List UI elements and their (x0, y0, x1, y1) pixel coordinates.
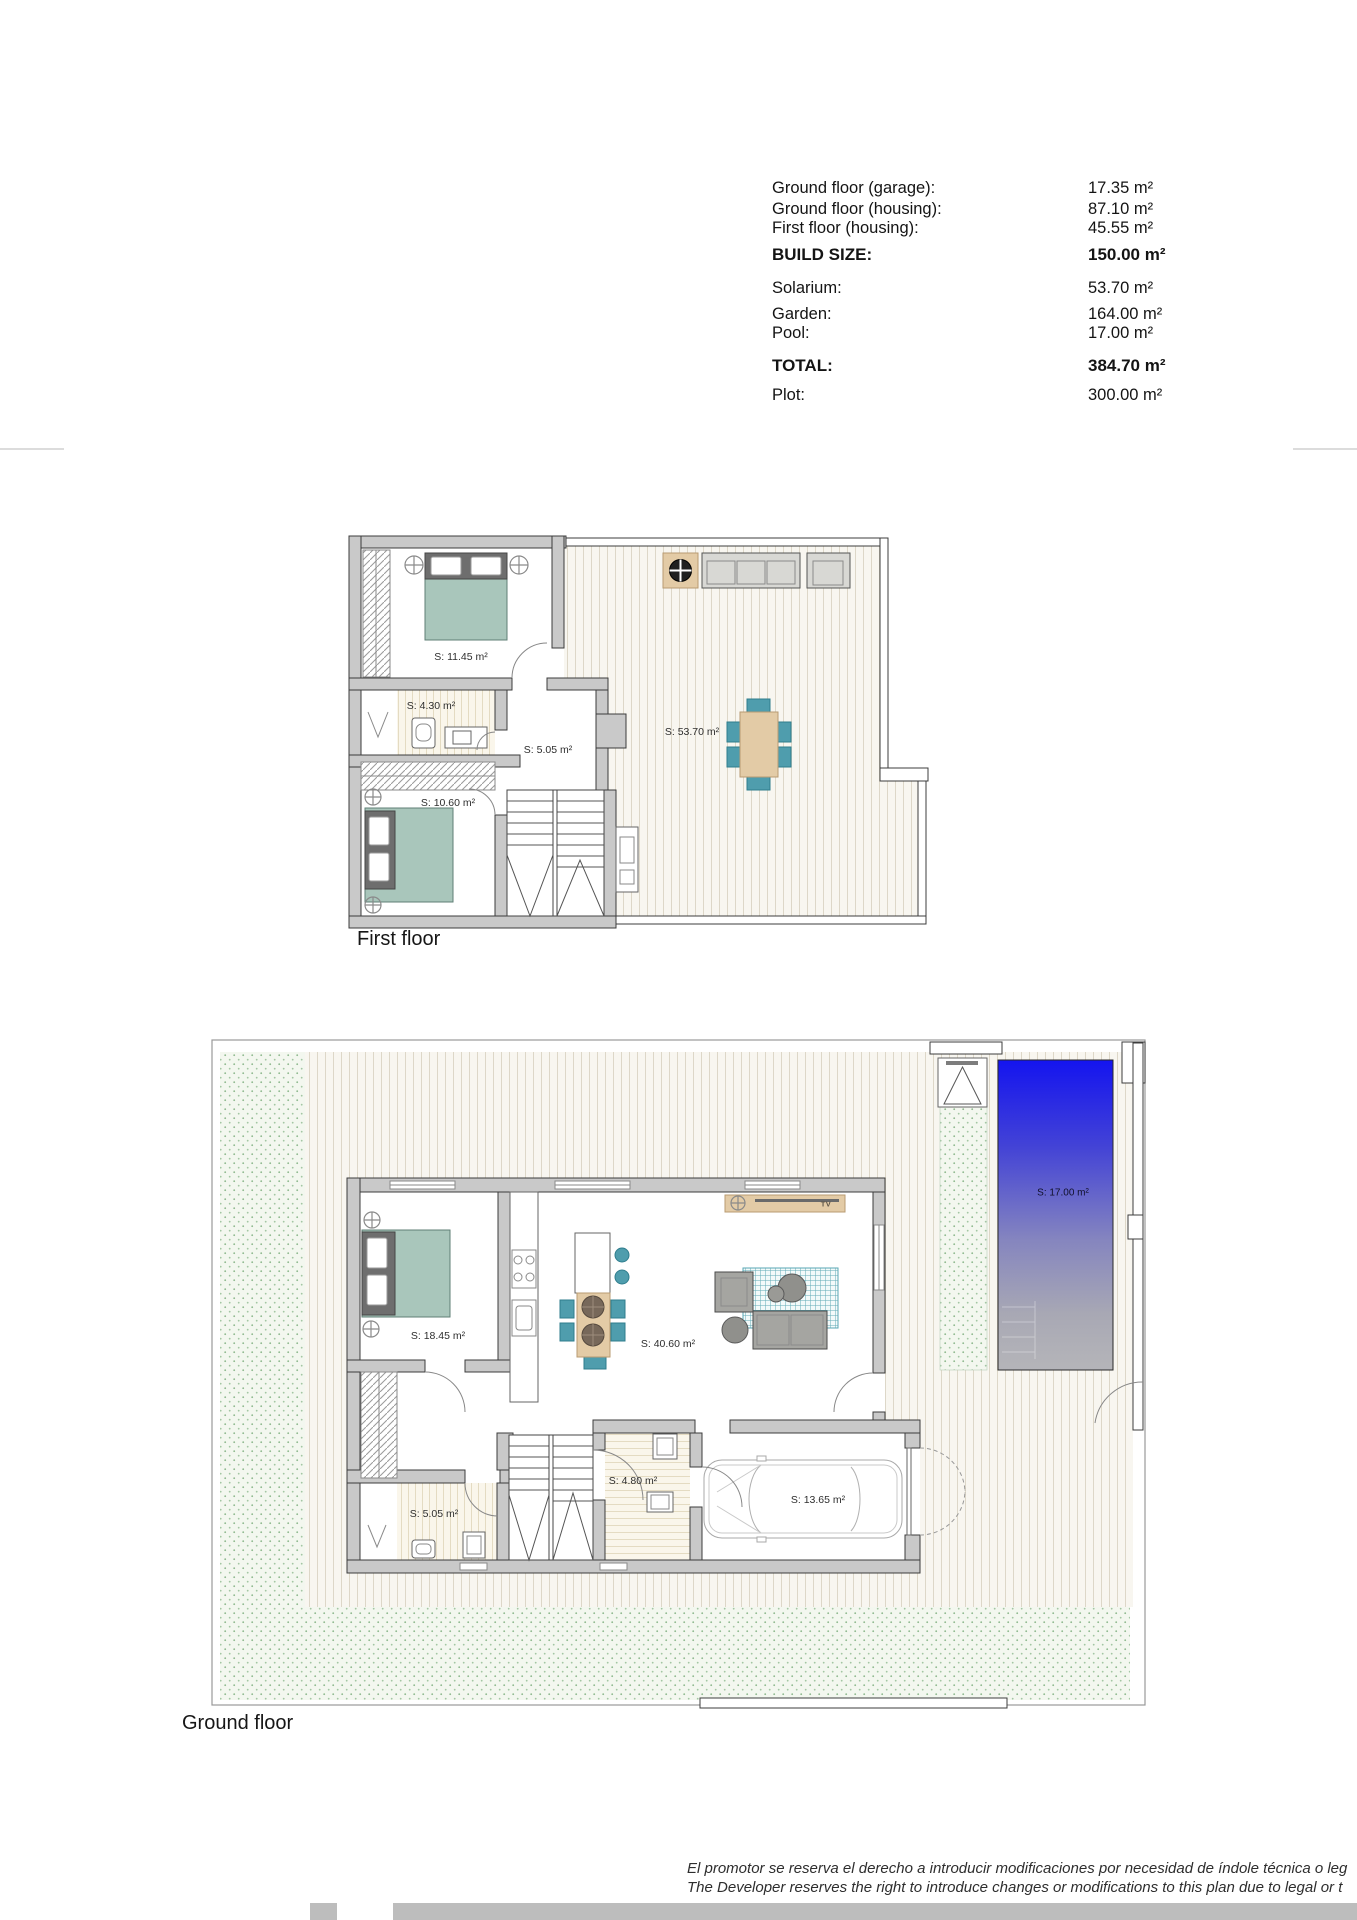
kitchen-counter (510, 1192, 538, 1402)
room-label-bathroom: S: 5.05 m² (410, 1508, 458, 1520)
summary-label: Ground floor (housing): (772, 200, 942, 219)
outdoor-armchair (807, 553, 850, 588)
summary-value: 164.00 m² (1088, 305, 1162, 324)
summary-label: Ground floor (garage): (772, 179, 935, 198)
first-floor-plan-drawing (335, 525, 945, 935)
first-floor-title: First floor (357, 928, 440, 951)
pool (998, 1060, 1113, 1370)
summary-row-garden: Garden:164.00 m² (772, 305, 1352, 326)
summary-row-build-size: BUILD SIZE:150.00 m² (772, 245, 1352, 266)
summary-label: TOTAL: (772, 356, 833, 376)
summary-label: BUILD SIZE: (772, 245, 872, 265)
summary-value: 45.55 m² (1088, 219, 1153, 238)
summary-value: 300.00 m² (1088, 386, 1162, 405)
room-label-bathroom: S: 4.30 m² (407, 700, 455, 712)
armchair (715, 1272, 753, 1312)
summary-value: 53.70 m² (1088, 279, 1153, 298)
floor-plan-sheet: Ground floor (garage):17.35 m² Ground fl… (0, 0, 1357, 1920)
summary-value: 17.00 m² (1088, 324, 1153, 343)
summary-row-solarium: Solarium:53.70 m² (772, 279, 1352, 300)
sofa (753, 1311, 827, 1349)
summary-row-garage: Ground floor (garage):17.35 m² (772, 179, 1352, 200)
ground-floor-plan-drawing (205, 1035, 1155, 1715)
page-edge-mark-left (0, 448, 64, 450)
wardrobe-bedroom1 (363, 550, 390, 677)
room-label-living-kitchen: S: 40.60 m² (641, 1338, 695, 1350)
summary-label: Garden: (772, 305, 832, 324)
summary-row-ground-housing: Ground floor (housing):87.10 m² (772, 200, 1352, 221)
cupboard (616, 827, 638, 892)
room-label-solarium: S: 53.70 m² (665, 726, 719, 738)
room-label-bedroom1: S: 11.45 m² (434, 651, 488, 663)
summary-label: Solarium: (772, 279, 842, 298)
bed-double-2 (365, 808, 453, 902)
summary-row-plot: Plot:300.00 m² (772, 386, 1352, 407)
bed-double (425, 553, 507, 640)
outdoor-sofa (702, 553, 800, 588)
room-label-pool: S: 17.00 m² (1037, 1188, 1089, 1199)
bed-double (362, 1230, 450, 1317)
disclaimer-line-en: The Developer reserves the right to intr… (687, 1878, 1357, 1897)
coffee-table-compass (663, 553, 698, 588)
room-label-laundry: S: 4.80 m² (609, 1475, 657, 1487)
footer-bar (310, 1903, 1357, 1920)
summary-value: 87.10 m² (1088, 200, 1153, 219)
stairs (509, 1435, 593, 1560)
wardrobe (361, 1372, 397, 1478)
room-label-bedroom: S: 18.45 m² (411, 1330, 465, 1342)
page-edge-mark-right (1293, 448, 1357, 450)
summary-label: Plot: (772, 386, 805, 405)
summary-label: First floor (housing): (772, 219, 919, 238)
ground-floor-title: Ground floor (182, 1712, 293, 1735)
room-label-garage: S: 13.65 m² (791, 1494, 845, 1506)
summary-row-pool: Pool:17.00 m² (772, 324, 1352, 345)
room-label-hall: S: 5.05 m² (524, 744, 572, 756)
summary-value: 150.00 m² (1088, 245, 1166, 265)
disclaimer: El promotor se reserva el derecho a intr… (687, 1859, 1357, 1897)
summary-row-first-housing: First floor (housing):45.55 m² (772, 219, 1352, 240)
pool-shower (938, 1058, 987, 1107)
tv-label: TV (821, 1200, 832, 1209)
room-label-bedroom2: S: 10.60 m² (421, 797, 475, 809)
wardrobe-bedroom2 (361, 762, 495, 790)
footer-bar-notch (337, 1903, 393, 1920)
summary-row-total: TOTAL:384.70 m² (772, 356, 1352, 377)
disclaimer-line-es: El promotor se reserva el derecho a intr… (687, 1859, 1357, 1878)
summary-label: Pool: (772, 324, 810, 343)
summary-value: 17.35 m² (1088, 179, 1153, 198)
stairs (507, 790, 604, 916)
summary-value: 384.70 m² (1088, 356, 1166, 376)
